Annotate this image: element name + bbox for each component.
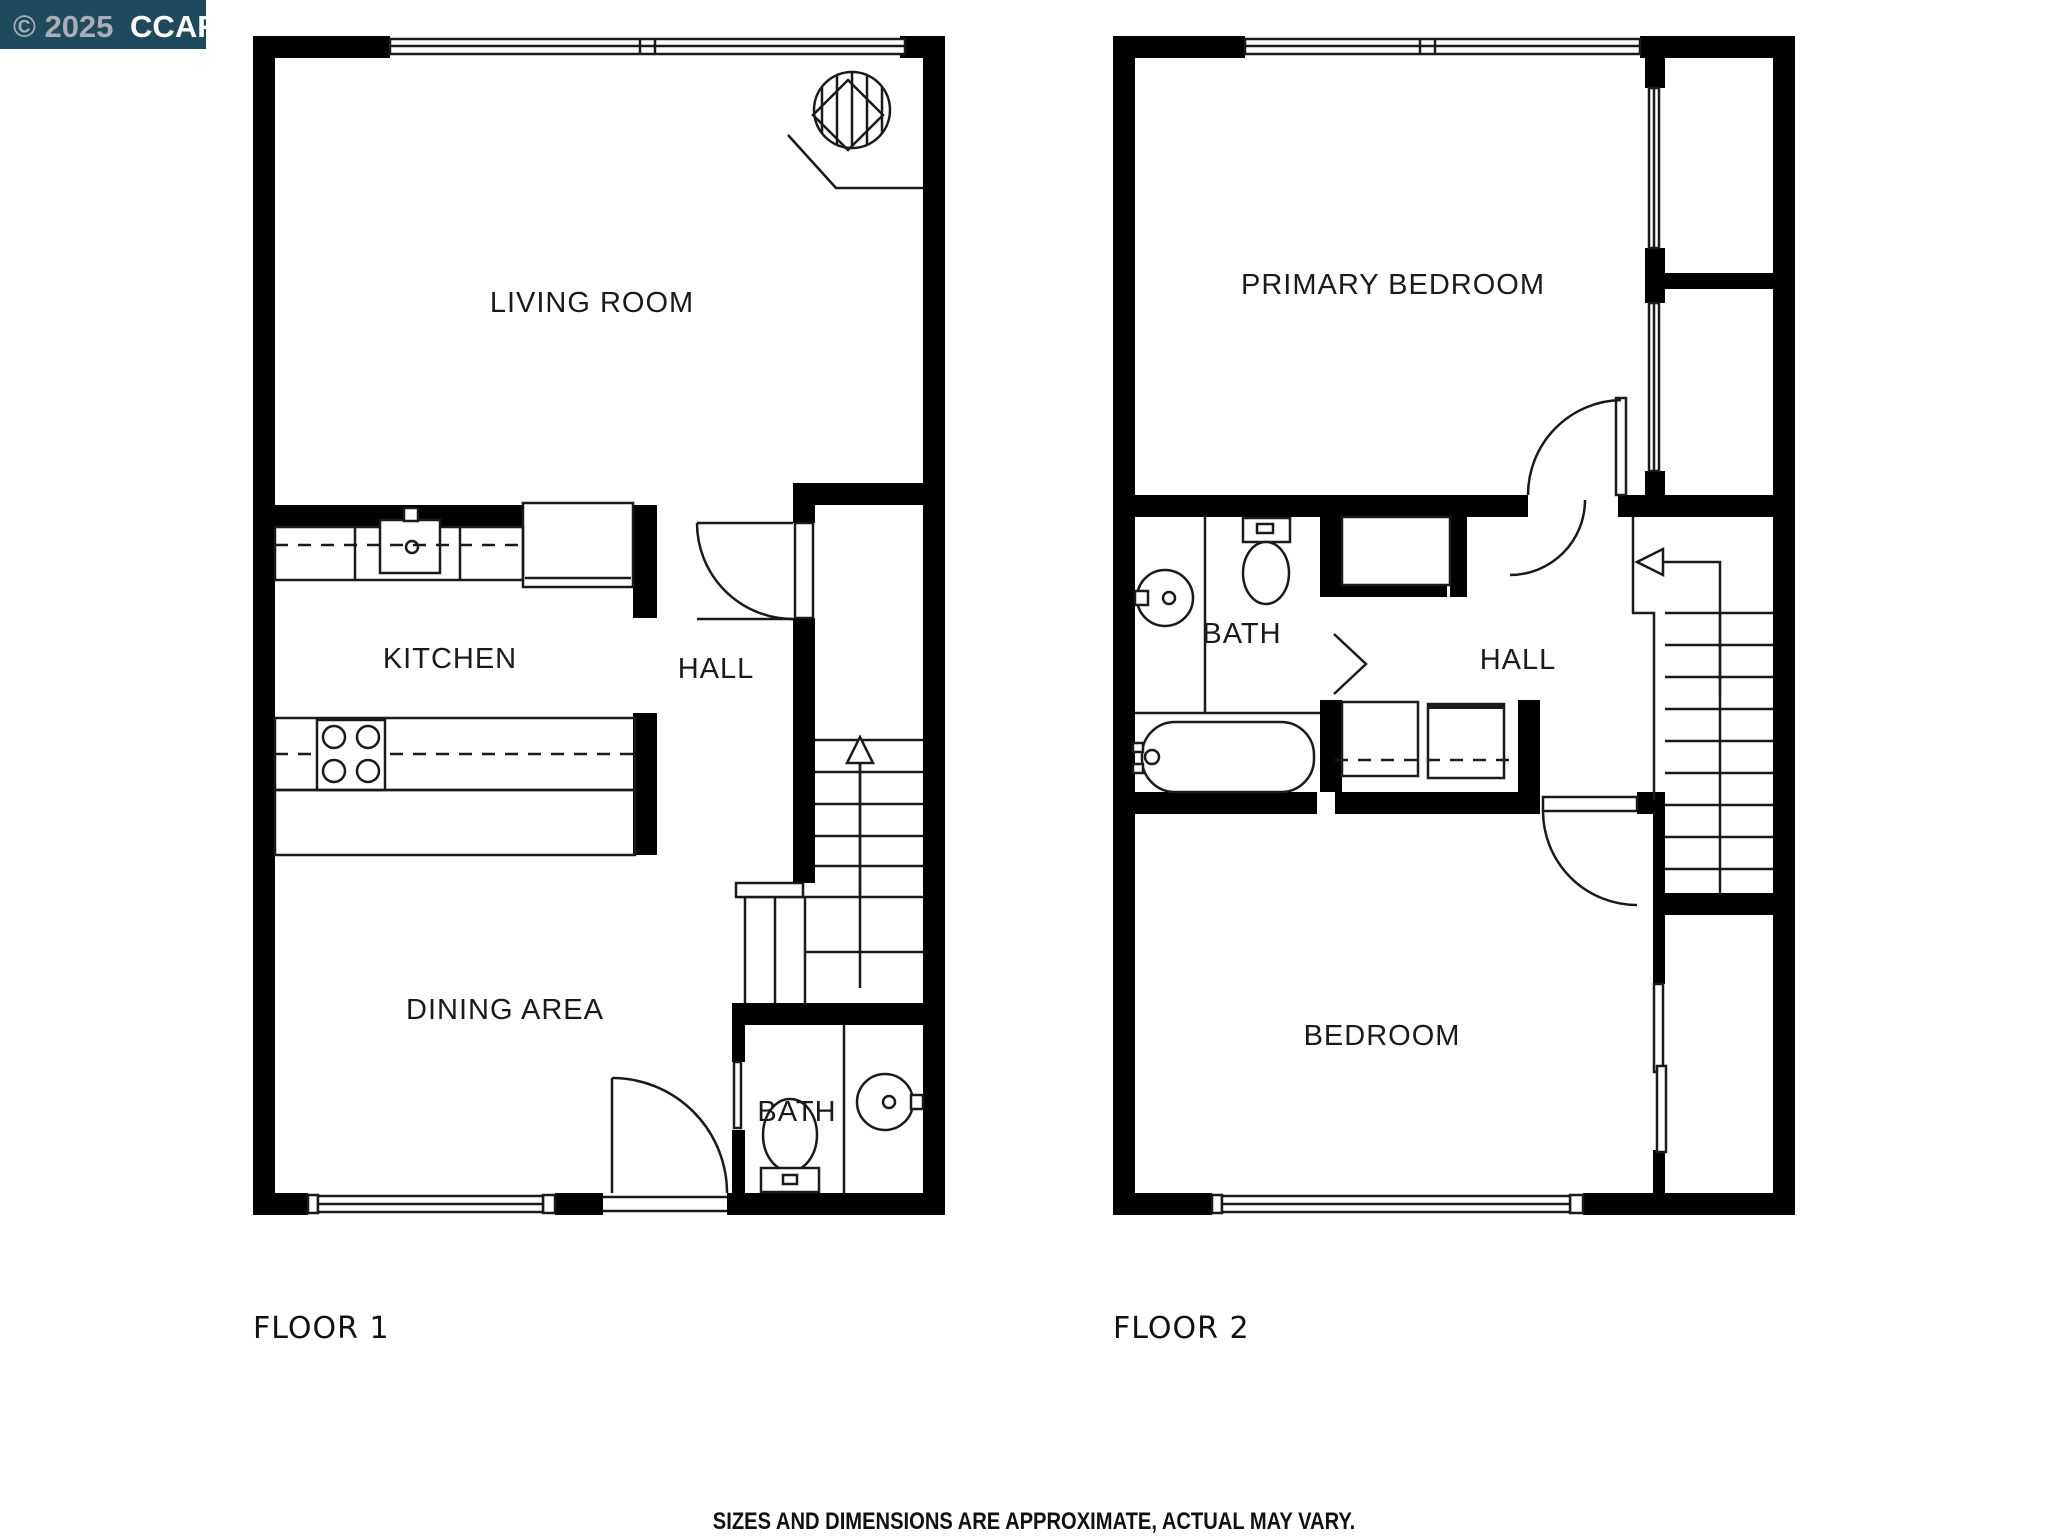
primary-bedroom-door: [1528, 398, 1626, 495]
dryer-icon: [1428, 704, 1504, 778]
badge-year: © 2025: [13, 9, 113, 44]
floor2-label: FLOOR 2: [1113, 1311, 1250, 1346]
kitchen-counters: [275, 503, 635, 855]
fireplace-icon: [788, 66, 923, 188]
floor2-plan: PRIMARY BEDROOM BATH HALL BEDROOM FLOOR …: [1113, 36, 1795, 1346]
room-label-hall-f1: HALL: [678, 653, 755, 685]
refrigerator-icon: [523, 503, 633, 587]
room-label-primary-bedroom: PRIMARY BEDROOM: [1241, 269, 1545, 301]
room-label-bath-f2: BATH: [1202, 618, 1281, 650]
room-label-bedroom: BEDROOM: [1304, 1020, 1461, 1052]
floor1-top-window: [390, 39, 905, 54]
floor1-bottom-window: [308, 1195, 555, 1213]
bedroom-side-windows: [1654, 984, 1666, 1152]
floor2-bath-fixtures: [1133, 517, 1320, 792]
floor1-walls: [253, 36, 945, 1215]
bedroom-door: [1543, 797, 1637, 905]
floor1-label: FLOOR 1: [253, 1311, 390, 1346]
copyright-badge: © 2025 CCAR: [0, 0, 220, 49]
sink-icon: [857, 1074, 913, 1130]
bath-door-chevron: [1334, 634, 1366, 694]
kitchen-sink-icon: [380, 520, 440, 573]
left-arrow-icon: [1637, 549, 1663, 575]
entry-door: [603, 1078, 727, 1211]
disclaimer-text: SIZES AND DIMENSIONS ARE APPROXIMATE, AC…: [713, 1507, 1355, 1534]
svg-text:© 2025 CCAR: © 2025 CCAR: [13, 9, 220, 44]
floor2-bottom-window: [1212, 1195, 1583, 1213]
washer-icon: [1342, 702, 1418, 776]
floorplan-page: LIVING ROOM KITCHEN HALL DINING AREA BAT…: [0, 0, 2048, 1536]
badge-brand: CCAR: [130, 9, 220, 44]
room-label-living-room: LIVING ROOM: [490, 287, 694, 319]
pocket-door: [734, 1062, 741, 1128]
laundry-area: [1335, 702, 1518, 778]
floor2-top-window: [1245, 39, 1640, 54]
room-label-bath-f1: BATH: [757, 1096, 836, 1128]
stairs-up: [736, 737, 923, 1003]
room-label-kitchen: KITCHEN: [383, 643, 517, 675]
toilet-icon: [1243, 518, 1290, 542]
floor1-plan: LIVING ROOM KITCHEN HALL DINING AREA BAT…: [253, 36, 945, 1346]
floorplan-image: LIVING ROOM KITCHEN HALL DINING AREA BAT…: [0, 0, 2048, 1536]
room-label-dining-area: DINING AREA: [406, 994, 604, 1026]
bathtub-icon: [1142, 722, 1314, 792]
hall-door: [697, 523, 813, 619]
room-label-hall-f2: HALL: [1480, 644, 1557, 676]
